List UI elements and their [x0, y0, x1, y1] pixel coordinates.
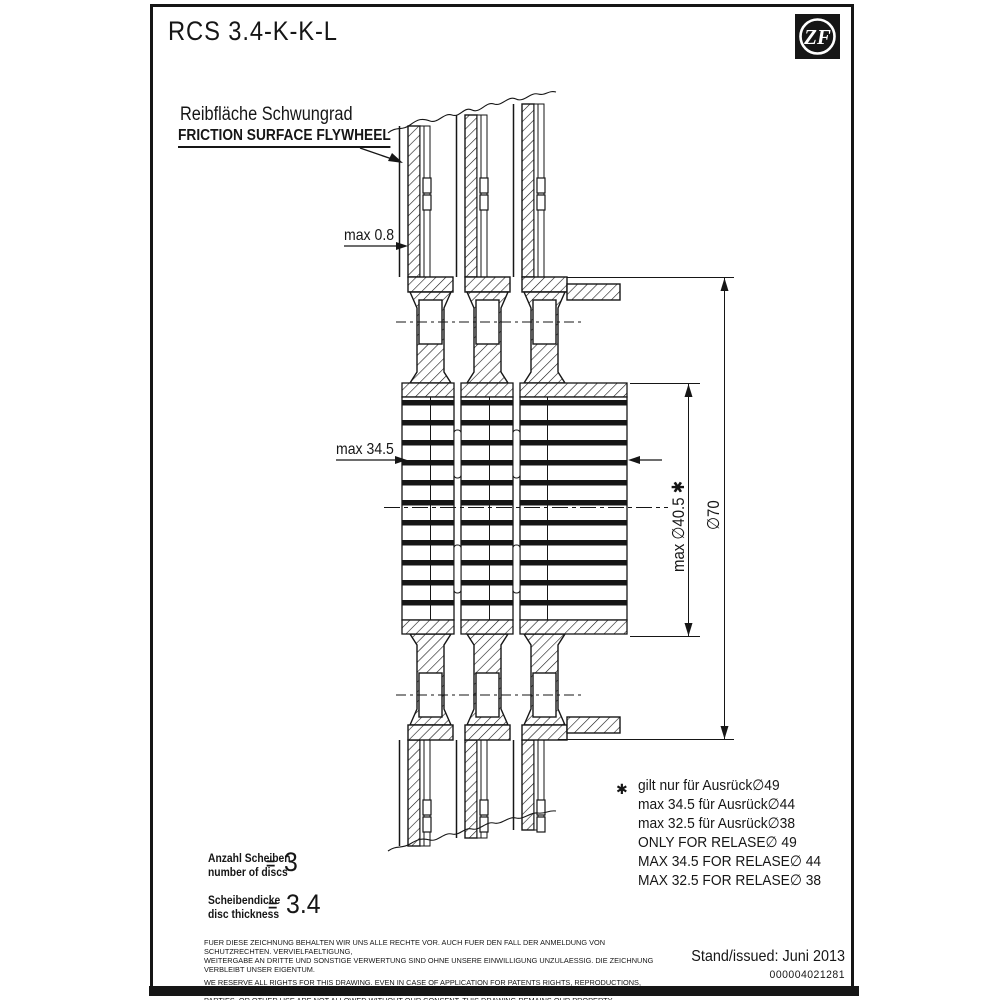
legal-line: WE RESERVE ALL RIGHTS FOR THIS DRAWING. … [204, 978, 655, 996]
clutch-cross-section-drawing: max 0.8 max 34.5 max ∅40.5 ✱ [0, 0, 1000, 1000]
note-line: max 32.5 für Ausrück∅38 [638, 814, 821, 833]
asterisk-notes: ✱ gilt nur für Ausrück∅49 max 34.5 für A… [616, 776, 837, 890]
document-number: 000004021281 [650, 969, 845, 981]
discs-equals: = [266, 856, 275, 874]
dim-max-0-8-label: max 0.8 [344, 226, 394, 244]
dimension-d40-5: max ∅40.5 ✱ [630, 384, 700, 637]
note-line: MAX 32.5 FOR RELASE∅ 38 [638, 871, 821, 890]
thickness-value: 3.4 [286, 889, 321, 920]
issued-date: Stand/issued: Juni 2013 [634, 948, 846, 966]
legal-line: PARTIES, OR OTHER USE ARE NOT ALLOWED WI… [204, 996, 655, 1000]
dim-d40-5-label: max ∅40.5 ✱ [670, 481, 688, 572]
discs-label-en: number of discs [208, 866, 288, 879]
dim-max-34-5-label: max 34.5 [336, 440, 394, 458]
dimension-max-0-8: max 0.8 [344, 226, 408, 250]
legal-line: FUER DIESE ZEICHNUNG BEHALTEN WIR UNS AL… [204, 938, 655, 956]
legal-text: FUER DIESE ZEICHNUNG BEHALTEN WIR UNS AL… [204, 938, 655, 1000]
hub-spline-teeth [402, 383, 627, 634]
asterisk-symbol: ✱ [616, 780, 628, 799]
discs-value: 3 [284, 847, 298, 878]
drawing-sheet-canvas: RCS 3.4-K-K-L ZF Reibfläche Schwungrad F… [0, 0, 1000, 1000]
note-line: max 34.5 für Ausrück∅44 [638, 795, 821, 814]
note-line: MAX 34.5 FOR RELASE∅ 44 [638, 852, 821, 871]
thickness-equals: = [268, 898, 277, 916]
discs-label-de: Anzahl Scheiben [208, 852, 291, 865]
legal-line: WEITERGABE AN DRITTE UND SONSTIGE VERWER… [204, 956, 655, 974]
note-line: ONLY FOR RELASE∅ 49 [638, 833, 821, 852]
dim-d70-label: ∅70 [705, 500, 723, 530]
note-line: gilt nur für Ausrück∅49 [638, 776, 821, 795]
friction-leader-arrow [360, 148, 403, 163]
